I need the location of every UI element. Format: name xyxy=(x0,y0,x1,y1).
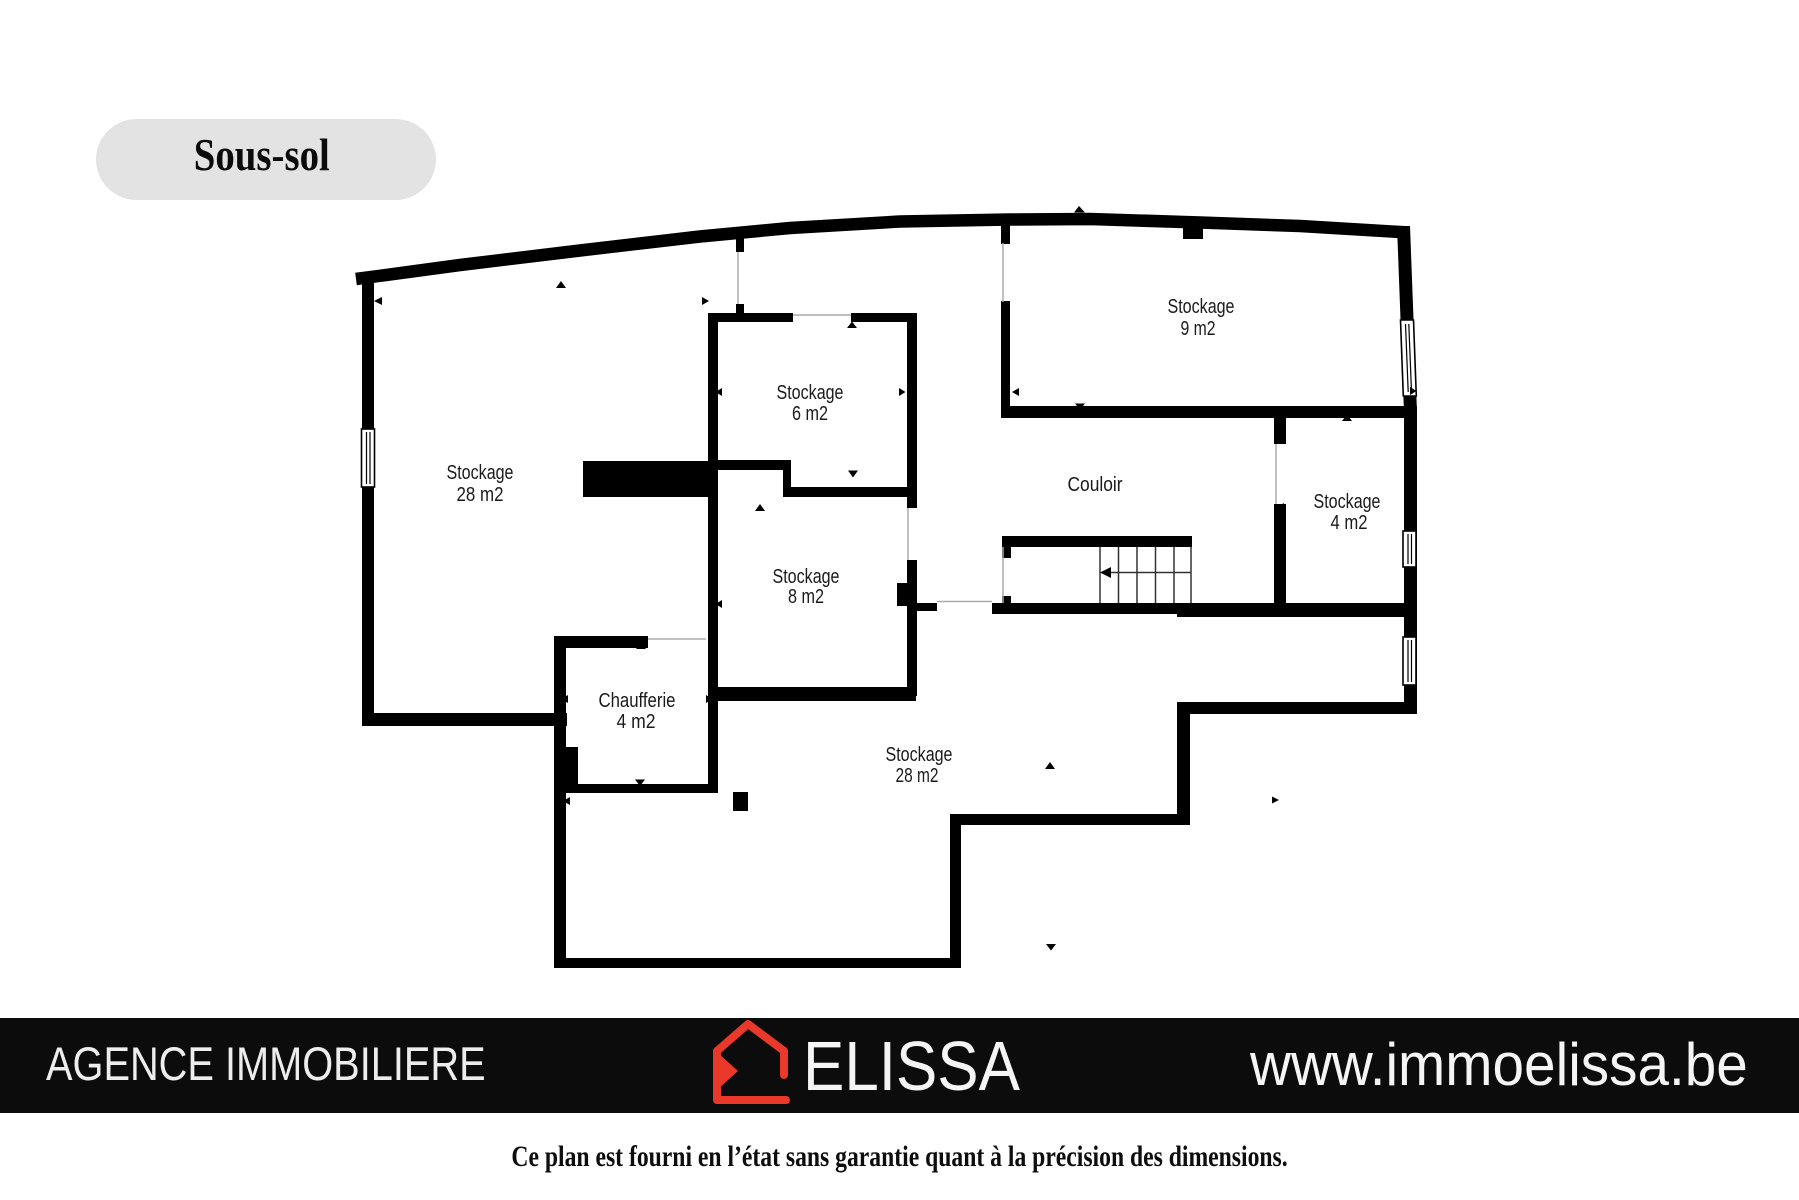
svg-text:6 m2: 6 m2 xyxy=(792,403,828,425)
svg-text:4 m2: 4 m2 xyxy=(1331,512,1368,534)
svg-text:28 m2: 28 m2 xyxy=(896,765,939,787)
svg-text:Couloir: Couloir xyxy=(1068,474,1123,496)
svg-text:Stockage: Stockage xyxy=(886,744,953,766)
svg-text:Chaufferie: Chaufferie xyxy=(599,690,676,712)
svg-text:8 m2: 8 m2 xyxy=(788,586,824,608)
svg-text:Stockage: Stockage xyxy=(1168,296,1235,318)
svg-text:9 m2: 9 m2 xyxy=(1181,318,1216,340)
svg-text:Stockage: Stockage xyxy=(777,382,844,404)
svg-text:28 m2: 28 m2 xyxy=(457,484,504,506)
svg-text:Stockage: Stockage xyxy=(773,566,840,588)
svg-text:4 m2: 4 m2 xyxy=(617,711,656,733)
svg-text:Stockage: Stockage xyxy=(1314,491,1381,513)
svg-text:Stockage: Stockage xyxy=(447,462,514,484)
